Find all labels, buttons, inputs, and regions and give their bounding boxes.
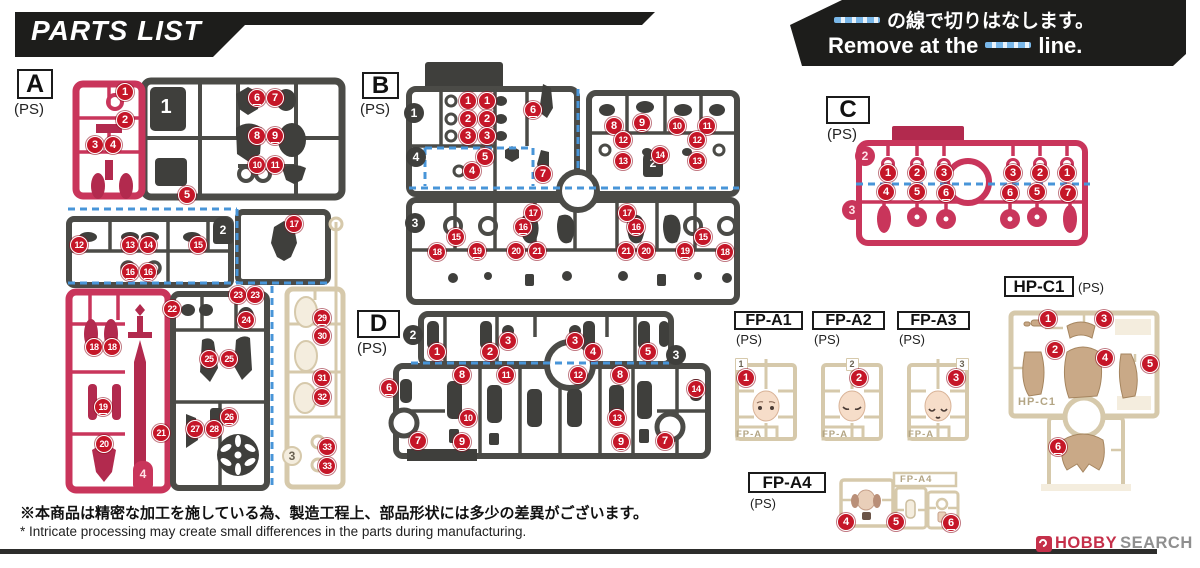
part-marker-FP-A3-3: 3	[947, 369, 965, 387]
part-marker-B-10: 10	[668, 117, 686, 135]
part-marker-B-9: 9	[633, 114, 651, 132]
part-marker-B-12: 12	[614, 131, 632, 149]
molded-text-FP-A: FP-A	[736, 429, 762, 440]
part-marker-HP-C1-4: 4	[1096, 349, 1114, 367]
part-marker-B-3: 3	[459, 127, 477, 145]
part-marker-B-6: 6	[524, 101, 542, 119]
part-marker-B-3: 3	[478, 127, 496, 145]
part-marker-A-15: 15	[189, 236, 207, 254]
part-marker-A-16: 16	[139, 263, 157, 281]
watermark-brand: HOBBY	[1055, 534, 1117, 553]
runner-material-FP-A4: (PS)	[750, 496, 776, 511]
part-marker-B-21: 21	[617, 242, 635, 260]
part-marker-A-30: 30	[313, 327, 331, 345]
parts-list-page: PARTS LIST の線で切りはなします。 Remove at theline…	[0, 0, 1200, 568]
part-marker-FP-A2-2: 2	[850, 369, 868, 387]
part-marker-B-18: 18	[716, 243, 734, 261]
part-marker-B-15: 15	[694, 228, 712, 246]
part-marker-B-13: 13	[688, 152, 706, 170]
part-marker-A-9: 9	[266, 127, 284, 145]
part-marker-B-17: 17	[524, 204, 542, 222]
part-marker-D-7: 7	[409, 432, 427, 450]
cut-note-jp: の線で切りはなします。	[834, 6, 1094, 33]
part-marker-C-1: 1	[879, 164, 897, 182]
cut-note-en: Remove at theline.	[828, 33, 1082, 59]
gate-tag-D-2: 2	[403, 325, 423, 345]
part-marker-HP-C1-1: 1	[1039, 310, 1057, 328]
part-marker-A-27: 27	[186, 420, 204, 438]
runner-label-FP-A2: FP-A2	[812, 311, 885, 330]
part-marker-D-1: 1	[428, 343, 446, 361]
part-marker-D-3: 3	[566, 332, 584, 350]
runner-material-FP-A2: (PS)	[814, 332, 840, 347]
part-marker-B-12: 12	[688, 131, 706, 149]
runner-B-sprue	[395, 58, 745, 308]
runner-label-FP-A3: FP-A3	[897, 311, 970, 330]
part-marker-B-2: 2	[478, 110, 496, 128]
dashed-line-icon	[985, 42, 1031, 48]
parts-list-banner: PARTS LIST	[15, 12, 657, 57]
part-marker-A-25: 25	[220, 350, 238, 368]
part-marker-A-14: 14	[139, 236, 157, 254]
gate-tag-C-2: 2	[855, 146, 875, 166]
runner-material-D: (PS)	[357, 340, 387, 357]
runner-material-FP-A1: (PS)	[736, 332, 762, 347]
part-marker-B-7: 7	[534, 165, 552, 183]
parts-list-title: PARTS LIST	[31, 15, 202, 47]
manufacturing-note-jp: ※本商品は精密な加工を施している為、製造工程上、部品形状には多少の差異がございま…	[20, 502, 648, 523]
part-marker-A-13: 13	[121, 236, 139, 254]
part-marker-B-1: 1	[459, 92, 477, 110]
part-marker-A-8: 8	[248, 127, 266, 145]
gate-tag-A-1: 1	[151, 90, 181, 124]
part-marker-FP-A1-1: 1	[737, 369, 755, 387]
manufacturing-note-en: * Intricate processing may create small …	[20, 524, 526, 539]
runner-material-B: (PS)	[360, 101, 390, 118]
part-marker-A-18: 18	[103, 338, 121, 356]
runner-material-A: (PS)	[14, 101, 44, 118]
part-marker-FP-A4-5: 5	[887, 513, 905, 531]
part-marker-A-26: 26	[220, 408, 238, 426]
part-marker-A-22: 22	[163, 300, 181, 318]
molded-text-HP-C1: HP-C1	[1018, 396, 1056, 408]
bottom-rule	[0, 549, 1157, 554]
watermark-suffix: SEARCH	[1120, 534, 1193, 553]
part-marker-B-20: 20	[637, 242, 655, 260]
runner-label-A: A	[17, 69, 53, 99]
part-marker-D-4: 4	[584, 343, 602, 361]
runner-material-FP-A3: (PS)	[899, 332, 925, 347]
part-marker-D-9: 9	[612, 433, 630, 451]
runner-material-HP-C1: (PS)	[1078, 280, 1104, 295]
part-marker-A-28: 28	[205, 420, 223, 438]
gate-tag-B-4: 4	[406, 147, 426, 167]
part-marker-A-20: 20	[95, 435, 113, 453]
part-marker-A-12: 12	[70, 236, 88, 254]
runner-label-B: B	[362, 72, 399, 99]
part-marker-D-9: 9	[453, 433, 471, 451]
part-marker-A-21: 21	[152, 424, 170, 442]
part-marker-D-8: 8	[611, 366, 629, 384]
part-marker-A-18: 18	[85, 338, 103, 356]
part-marker-A-7: 7	[266, 89, 284, 107]
part-marker-B-13: 13	[614, 152, 632, 170]
dashed-line-icon	[834, 17, 880, 23]
part-marker-B-18: 18	[428, 243, 446, 261]
part-marker-A-24: 24	[237, 311, 255, 329]
part-marker-D-7: 7	[656, 432, 674, 450]
part-marker-HP-C1-6: 6	[1049, 438, 1067, 456]
part-marker-B-4: 4	[463, 162, 481, 180]
part-marker-A-3: 3	[86, 136, 104, 154]
part-marker-D-2: 2	[481, 343, 499, 361]
gate-tag-A-2: 2	[213, 217, 233, 244]
part-marker-B-5: 5	[476, 148, 494, 166]
part-marker-D-8: 8	[453, 366, 471, 384]
part-marker-C-6: 6	[937, 184, 955, 202]
gate-tag-B-3: 3	[405, 213, 425, 233]
part-marker-C-5: 5	[1028, 183, 1046, 201]
part-marker-A-16: 16	[121, 263, 139, 281]
part-marker-A-6: 6	[248, 89, 266, 107]
part-marker-A-5: 5	[178, 186, 196, 204]
part-marker-B-17: 17	[618, 204, 636, 222]
hobby-search-icon	[1036, 536, 1052, 552]
part-marker-B-19: 19	[676, 242, 694, 260]
part-marker-A-25: 25	[200, 350, 218, 368]
part-marker-A-29: 29	[313, 309, 331, 327]
part-marker-C-2: 2	[1031, 164, 1049, 182]
part-marker-A-10: 10	[248, 156, 266, 174]
part-marker-HP-C1-2: 2	[1046, 341, 1064, 359]
part-marker-C-6: 6	[1001, 184, 1019, 202]
runner-label-FP-A1: FP-A1	[734, 311, 803, 330]
part-marker-B-14: 14	[651, 146, 669, 164]
part-marker-FP-A4-4: 4	[837, 513, 855, 531]
part-marker-A-23: 23	[229, 286, 247, 304]
part-marker-HP-C1-3: 3	[1095, 310, 1113, 328]
part-marker-D-11: 11	[497, 366, 515, 384]
part-marker-D-6: 6	[380, 379, 398, 397]
part-marker-A-4: 4	[104, 136, 122, 154]
part-marker-A-33: 33	[318, 457, 336, 475]
part-marker-C-7: 7	[1059, 184, 1077, 202]
part-marker-B-20: 20	[507, 242, 525, 260]
part-marker-D-13: 13	[608, 409, 626, 427]
part-marker-C-5: 5	[908, 183, 926, 201]
runner-label-HP-C1: HP-C1	[1004, 276, 1074, 297]
gate-tag-A-4: 4	[133, 461, 153, 488]
part-marker-A-1: 1	[116, 83, 134, 101]
runner-label-FP-A4: FP-A4	[748, 472, 826, 493]
molded-text-FP-A: FP-A	[908, 429, 934, 440]
part-marker-B-1: 1	[478, 92, 496, 110]
molded-text-FP-A4: FP-A4	[900, 474, 932, 485]
part-marker-D-3: 3	[499, 332, 517, 350]
part-marker-A-33: 33	[318, 438, 336, 456]
molded-text-FP-A: FP-A	[822, 429, 848, 440]
part-marker-D-10: 10	[459, 409, 477, 427]
part-marker-A-31: 31	[313, 369, 331, 387]
cut-note-banner: の線で切りはなします。 Remove at theline.	[790, 0, 1186, 66]
gate-tag-B-1: 1	[404, 103, 424, 123]
part-marker-C-4: 4	[877, 183, 895, 201]
part-marker-B-2: 2	[459, 110, 477, 128]
part-marker-A-2: 2	[116, 111, 134, 129]
part-marker-A-11: 11	[266, 156, 284, 174]
part-marker-D-14: 14	[687, 380, 705, 398]
part-marker-C-2: 2	[908, 164, 926, 182]
part-marker-A-32: 32	[313, 388, 331, 406]
part-marker-B-21: 21	[528, 242, 546, 260]
hobby-search-watermark: HOBBY SEARCH	[1036, 534, 1193, 553]
part-marker-A-23: 23	[246, 286, 264, 304]
gate-tag-D-3: 3	[666, 345, 686, 365]
part-marker-B-19: 19	[468, 242, 486, 260]
part-marker-C-1: 1	[1058, 164, 1076, 182]
part-marker-B-15: 15	[447, 228, 465, 246]
gate-tag-A-3: 3	[282, 446, 302, 466]
part-marker-FP-A4-6: 6	[942, 514, 960, 532]
gate-tag-C-3: 3	[842, 200, 862, 220]
part-marker-C-3: 3	[1004, 164, 1022, 182]
part-marker-A-17: 17	[285, 215, 303, 233]
part-marker-A-19: 19	[94, 398, 112, 416]
part-marker-HP-C1-5: 5	[1141, 355, 1159, 373]
part-marker-D-12: 12	[569, 366, 587, 384]
part-marker-C-3: 3	[935, 164, 953, 182]
part-marker-D-5: 5	[639, 343, 657, 361]
